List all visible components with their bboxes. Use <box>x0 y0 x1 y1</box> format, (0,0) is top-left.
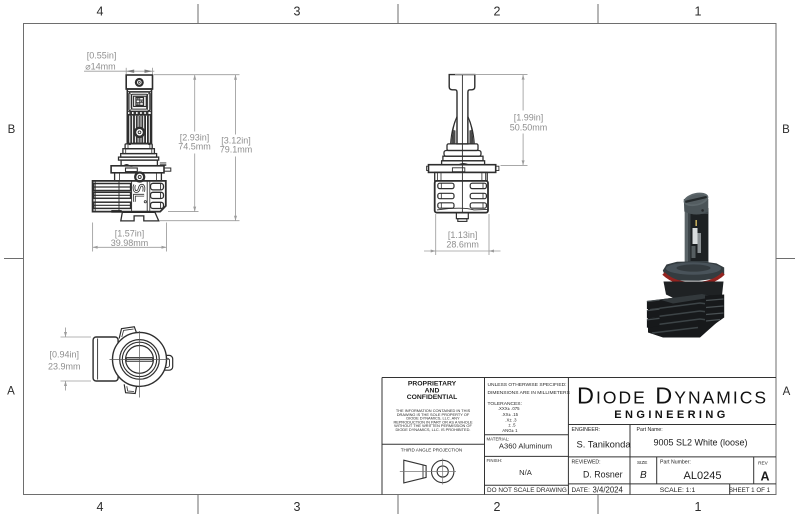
svg-text:B: B <box>782 124 790 136</box>
svg-text:DO NOT SCALE DRAWING: DO NOT SCALE DRAWING <box>487 487 567 494</box>
svg-text:UNLESS OTHERWISE SPECIFIED:: UNLESS OTHERWISE SPECIFIED: <box>488 382 567 388</box>
svg-text:9005 SL2 White (loose): 9005 SL2 White (loose) <box>653 438 747 448</box>
svg-text:[0.55in]: [0.55in] <box>87 50 117 60</box>
svg-text:4: 4 <box>97 500 104 514</box>
svg-text:28.6mm: 28.6mm <box>446 240 479 250</box>
svg-text:DATE:: DATE: <box>572 487 591 494</box>
svg-text:DIODE DYNAMICS: DIODE DYNAMICS <box>577 383 768 409</box>
svg-text:DIODE DYNAMICS, LLC. IS PROHIB: DIODE DYNAMICS, LLC. IS PROHIBITED. <box>395 427 470 432</box>
svg-text:2: 2 <box>494 5 501 19</box>
svg-text:4: 4 <box>97 5 104 19</box>
svg-text:SCALE: 1:1: SCALE: 1:1 <box>660 487 696 494</box>
svg-text:B: B <box>640 470 647 481</box>
svg-text:THIRD ANGLE PROJECTION: THIRD ANGLE PROJECTION <box>401 448 463 453</box>
svg-text:1: 1 <box>695 500 702 514</box>
svg-text:⌀14mm: ⌀14mm <box>85 61 115 71</box>
svg-text:A360 Aluminum: A360 Aluminum <box>499 442 552 451</box>
svg-text:74.5mm: 74.5mm <box>178 142 211 152</box>
svg-text:REV: REV <box>758 460 769 465</box>
svg-text:DIMENSIONS ARE IN MILLIMETERS: DIMENSIONS ARE IN MILLIMETERS <box>488 390 571 396</box>
svg-text:[1.99in]: [1.99in] <box>514 112 544 122</box>
svg-text:ENGINEERING: ENGINEERING <box>614 409 728 421</box>
svg-text:A: A <box>783 386 791 398</box>
svg-text:FINISH:: FINISH: <box>487 458 503 463</box>
svg-text:SIZE: SIZE <box>637 460 647 465</box>
svg-text:ANG± 1: ANG± 1 <box>502 428 518 433</box>
svg-text:Part Name:: Part Name: <box>637 427 663 433</box>
svg-text:REVIEWED:: REVIEWED: <box>572 459 601 465</box>
svg-text:SHEET 1 OF 1: SHEET 1 OF 1 <box>729 487 771 494</box>
svg-text:.XXX± .075: .XXX± .075 <box>498 406 520 411</box>
svg-text:ENGINEER:: ENGINEER: <box>572 427 601 433</box>
svg-text:A: A <box>760 470 769 484</box>
svg-text:AL0245: AL0245 <box>684 470 722 482</box>
svg-text:Part Number:: Part Number: <box>660 459 691 465</box>
svg-text:S. Tanikonda: S. Tanikonda <box>577 438 632 449</box>
svg-text:D. Rosner: D. Rosner <box>583 469 623 479</box>
svg-text:MATERIAL:: MATERIAL: <box>487 436 510 441</box>
svg-text:.XX± .15: .XX± .15 <box>502 412 519 417</box>
svg-text:CONFIDENTIAL: CONFIDENTIAL <box>407 394 458 401</box>
svg-text:2: 2 <box>494 500 501 514</box>
svg-text:.X± .3: .X± .3 <box>505 417 517 422</box>
svg-text:A: A <box>7 386 15 398</box>
svg-text:23.9mm: 23.9mm <box>48 362 81 372</box>
svg-text:3: 3 <box>294 5 301 19</box>
svg-text:[1.13in]: [1.13in] <box>448 230 478 240</box>
svg-text:39.98mm: 39.98mm <box>111 238 149 248</box>
svg-text:3: 3 <box>294 500 301 514</box>
svg-text:1: 1 <box>695 5 702 19</box>
svg-text:50.50mm: 50.50mm <box>510 122 548 132</box>
svg-text:B: B <box>8 124 16 136</box>
svg-text:[0.94in]: [0.94in] <box>50 350 80 360</box>
svg-text:3/4/2024: 3/4/2024 <box>593 485 624 494</box>
svg-text:79.1mm: 79.1mm <box>220 145 253 155</box>
svg-text:N/A: N/A <box>519 468 533 477</box>
